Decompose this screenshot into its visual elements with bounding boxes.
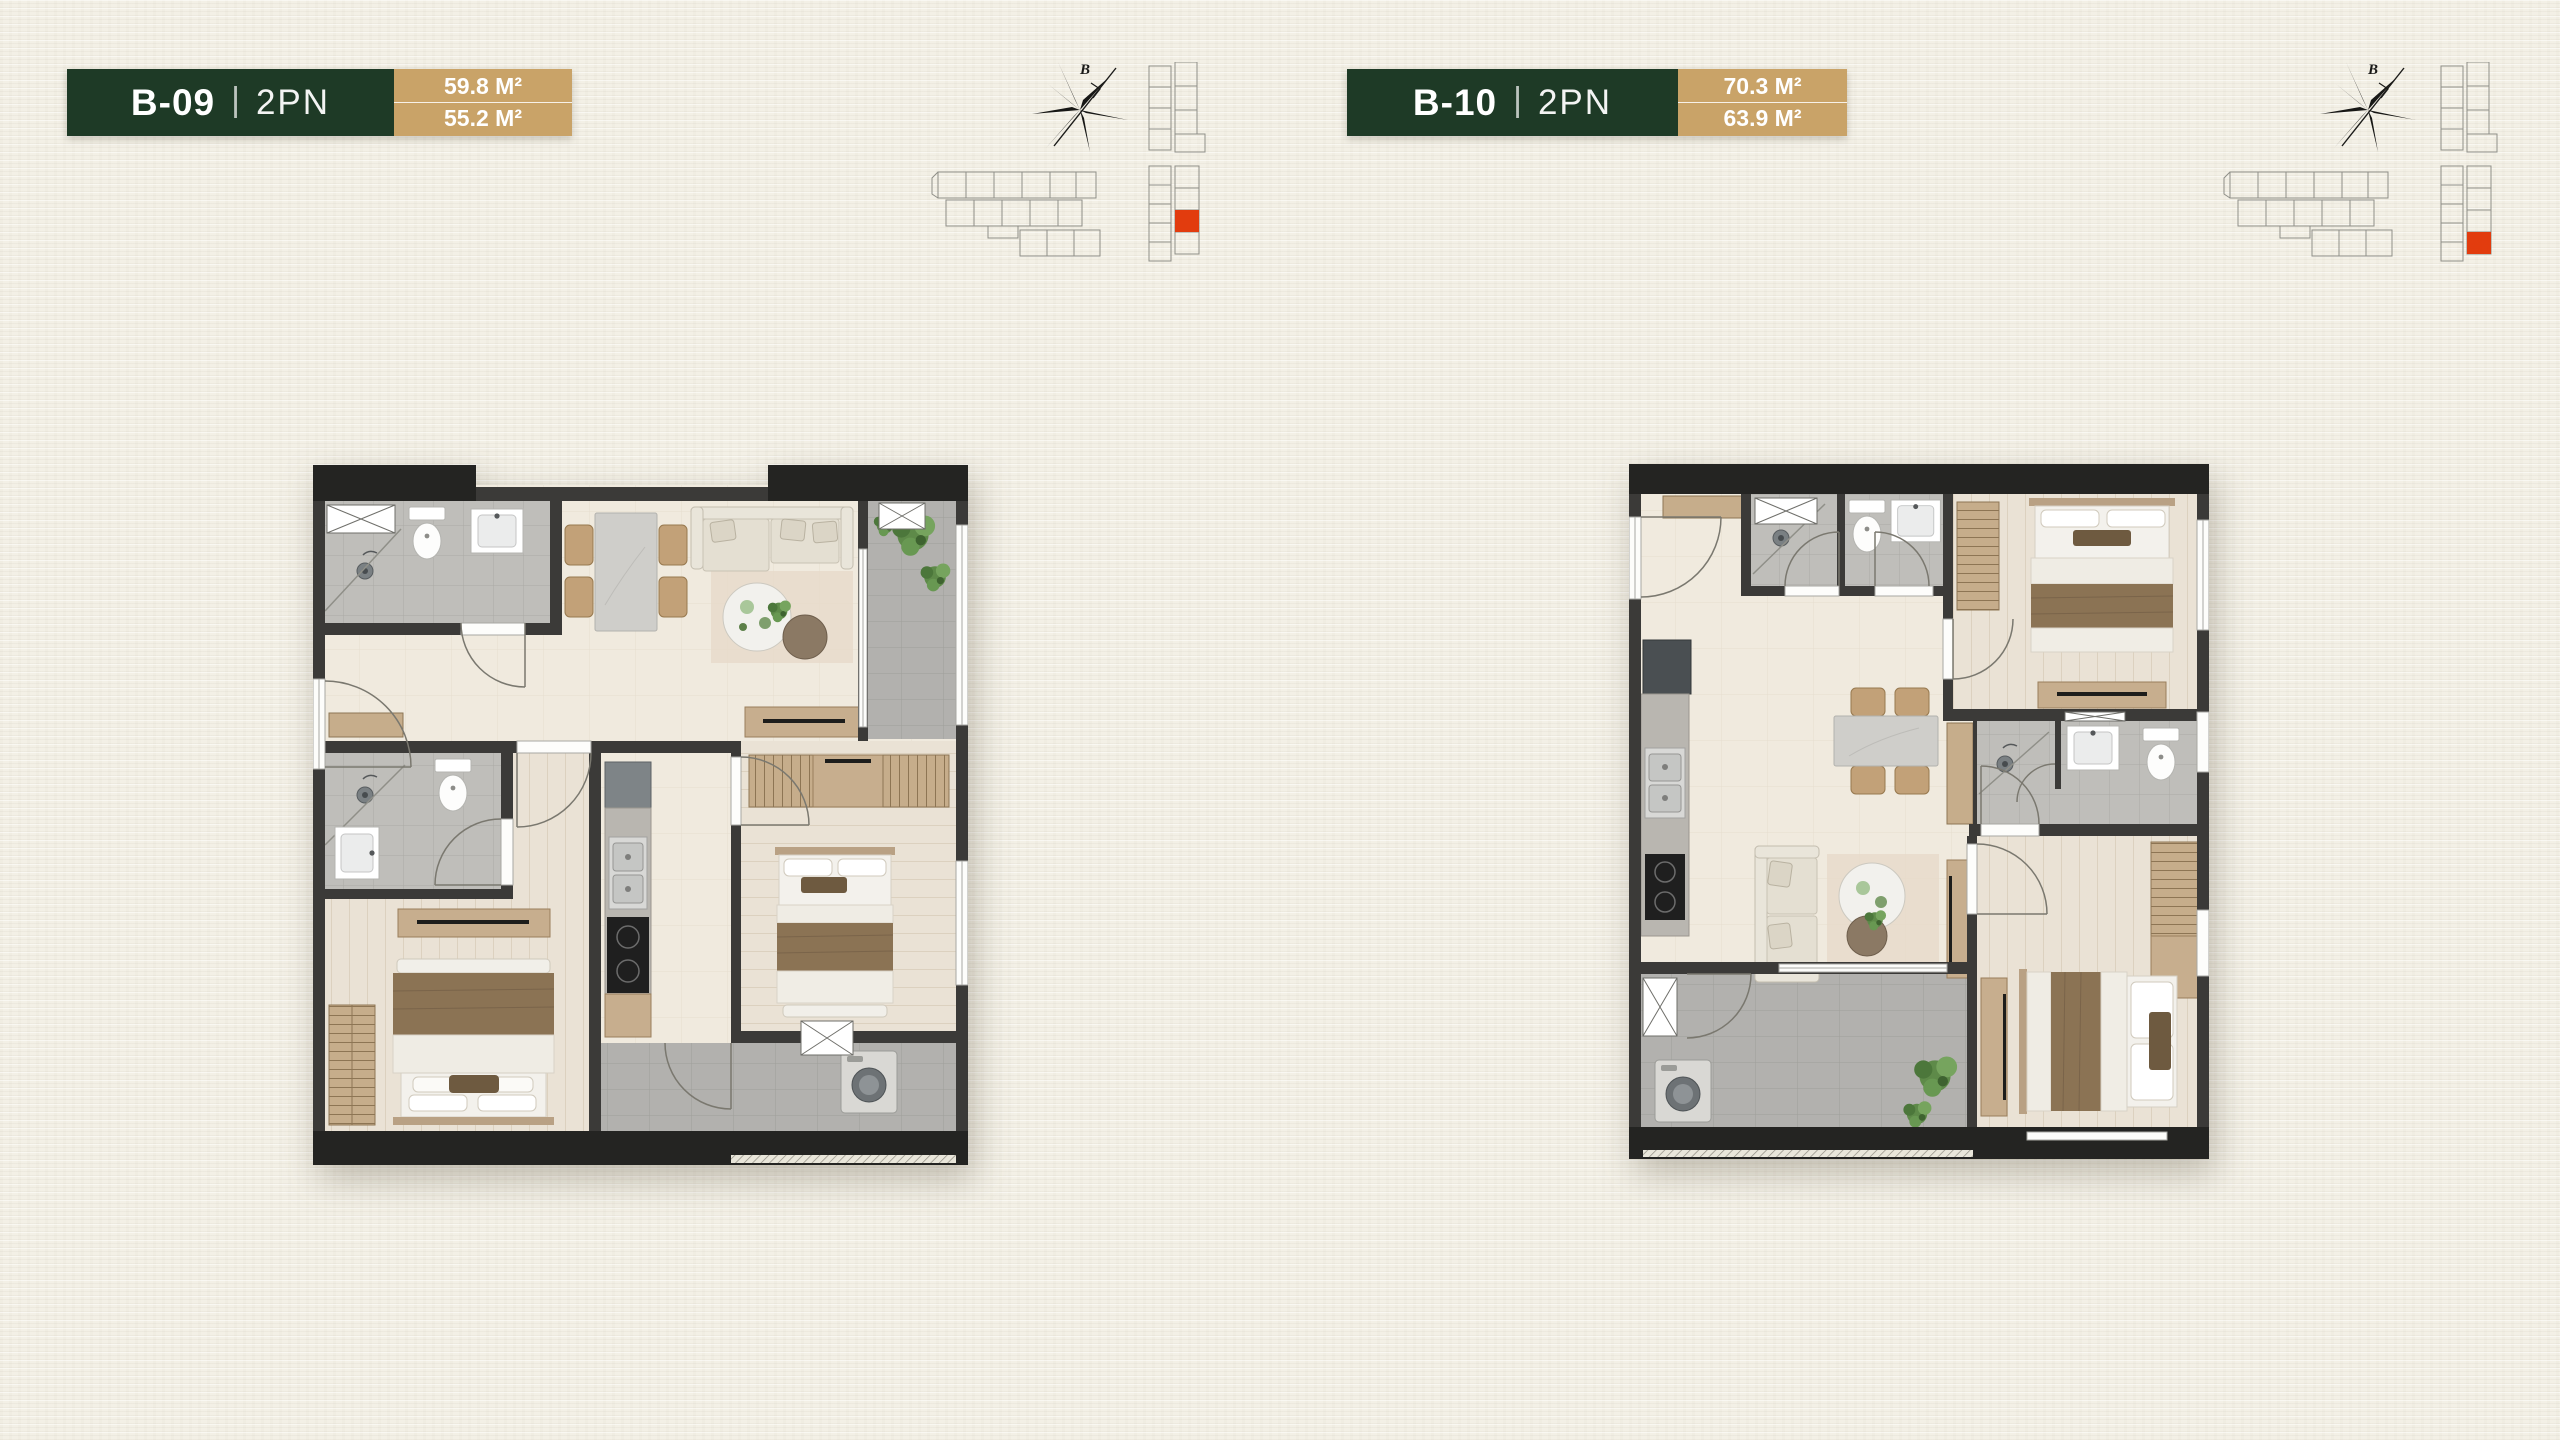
kitchen-sink [1645, 748, 1685, 818]
unit-code-separator: | [1513, 81, 1522, 120]
siteplan-diagram [930, 166, 1115, 261]
washing-machine [841, 1051, 897, 1113]
fridge [1643, 640, 1691, 694]
siteplan-diagram [2222, 166, 2407, 261]
kitchen-sink [609, 837, 647, 909]
washing-machine [1655, 1060, 1711, 1122]
area-construction: 70.3 M² [1678, 71, 1847, 102]
tv-console [1981, 978, 2007, 1116]
wardrobe [2151, 842, 2199, 936]
compass-label: B [1079, 62, 1090, 78]
unit-code-box: B-10 | 2PN [1347, 69, 1678, 136]
keyplan-selected-unit [2467, 232, 2491, 254]
area-construction: 59.8 M² [394, 71, 572, 102]
shoe-cabinet [329, 713, 403, 737]
service-balcony-floor [601, 1043, 956, 1131]
compass-label: B [2367, 62, 2378, 78]
sofa [1755, 846, 1819, 982]
bed-1 [393, 959, 554, 1125]
unit-bedrooms: 2PN [256, 83, 330, 123]
bed-2 [2019, 969, 2177, 1114]
keyplan-tower [1146, 62, 1218, 266]
area-usable: 55.2 M² [394, 103, 572, 134]
cooktop [607, 917, 649, 993]
compass-north-icon: B [1028, 56, 1138, 156]
shoe-cabinet [1663, 496, 1749, 518]
unit-bedrooms: 2PN [1538, 83, 1612, 123]
wardrobe [1957, 502, 1999, 610]
keyplan-selected-unit [1175, 210, 1199, 232]
bed-1 [2029, 498, 2175, 652]
unit-code-box: B-09 | 2PN [67, 69, 394, 136]
keyplan-tower [2438, 62, 2510, 266]
tv-console-living [1947, 860, 1969, 978]
unit-header: B-10 | 2PN 70.3 M² 63.9 M² [1347, 69, 1847, 136]
unit-code: B-10 [1413, 82, 1497, 124]
kitchen [1641, 640, 1691, 936]
unit-code-separator: | [231, 81, 240, 120]
kitchen [605, 762, 651, 1037]
floorplan-sheet: B-09 | 2PN 59.8 M² 55.2 M² [0, 0, 2560, 1440]
unit-area-box: 59.8 M² 55.2 M² [394, 69, 572, 136]
bed-2 [775, 847, 895, 1017]
unit-header: B-09 | 2PN 59.8 M² 55.2 M² [67, 69, 572, 136]
compass-north-icon: B [2316, 56, 2426, 156]
storage-cabinet [1947, 723, 1973, 824]
unit-code: B-09 [131, 82, 215, 124]
floorplan-b10 [1629, 464, 2209, 1159]
sofa [691, 507, 853, 571]
fridge [605, 762, 651, 808]
cooktop [1645, 854, 1685, 920]
floorplan-b09 [313, 465, 968, 1165]
unit-area-box: 70.3 M² 63.9 M² [1678, 69, 1847, 136]
area-usable: 63.9 M² [1678, 103, 1847, 134]
